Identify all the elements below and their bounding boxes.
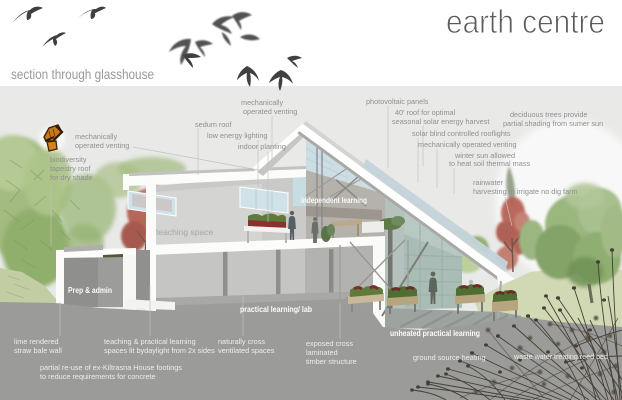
svg-text:40' roof for optimal: 40' roof for optimal [395, 108, 456, 117]
svg-text:mechanically: mechanically [241, 98, 284, 107]
svg-text:teaching space: teaching space [156, 227, 213, 237]
svg-text:earth centre: earth centre [446, 3, 605, 40]
svg-text:to reduce requirements for con: to reduce requirements for concrete [40, 372, 156, 381]
svg-text:solar blind controlled rooflig: solar blind controlled rooflights [412, 129, 511, 138]
svg-text:exposed cross: exposed cross [306, 339, 353, 348]
svg-text:seasonal solar energy harvest: seasonal solar energy harvest [392, 117, 489, 126]
svg-text:laminated: laminated [306, 348, 338, 357]
svg-text:practical learning/ lab: practical learning/ lab [240, 305, 312, 314]
svg-text:spaces lit bydaylight from 2x: spaces lit bydaylight from 2x sides [104, 346, 215, 355]
svg-text:rainwater: rainwater [473, 178, 504, 187]
svg-text:Prep & admin: Prep & admin [68, 286, 112, 295]
svg-text:harvesting to irrigate no dig: harvesting to irrigate no dig farm [473, 187, 578, 196]
svg-text:indoor planting: indoor planting [238, 142, 286, 151]
svg-text:teaching & practical learning: teaching & practical learning [104, 337, 196, 346]
svg-text:naturally cross: naturally cross [218, 337, 265, 346]
svg-text:waste water treating reed bed: waste water treating reed bed [513, 352, 608, 361]
svg-text:timber structure: timber structure [306, 357, 357, 366]
svg-text:independent learning: independent learning [301, 196, 367, 205]
svg-text:unheated practical learning: unheated practical learning [390, 329, 480, 338]
svg-text:mechanically operated venting: mechanically operated venting [418, 140, 517, 149]
svg-text:biodiversity: biodiversity [50, 155, 87, 164]
svg-text:to heat soil thermal mass: to heat soil thermal mass [449, 159, 530, 168]
svg-text:for dry shade: for dry shade [50, 173, 93, 182]
svg-text:sedum roof: sedum roof [195, 120, 232, 129]
svg-text:low energy lighting: low energy lighting [207, 131, 267, 140]
svg-text:partial shading from sumer sun: partial shading from sumer sun [503, 119, 603, 128]
svg-text:operated venting: operated venting [75, 141, 129, 150]
svg-text:section through glasshouse: section through glasshouse [11, 66, 154, 82]
svg-text:partial re-use of ex-Kiltrasna: partial re-use of ex-Kiltrasna House foo… [40, 363, 182, 372]
svg-text:ventilated spaces: ventilated spaces [218, 346, 275, 355]
svg-text:photovoltaic panels: photovoltaic panels [366, 97, 429, 106]
svg-text:tapestry roof: tapestry roof [50, 164, 92, 173]
svg-text:deciduous trees provide: deciduous trees provide [510, 110, 587, 119]
svg-text:mechanically: mechanically [75, 132, 118, 141]
svg-text:ground source heating: ground source heating [413, 353, 486, 362]
svg-text:straw bale wall: straw bale wall [14, 346, 62, 355]
svg-text:operated venting: operated venting [243, 107, 297, 116]
svg-text:lime rendered: lime rendered [14, 337, 59, 346]
